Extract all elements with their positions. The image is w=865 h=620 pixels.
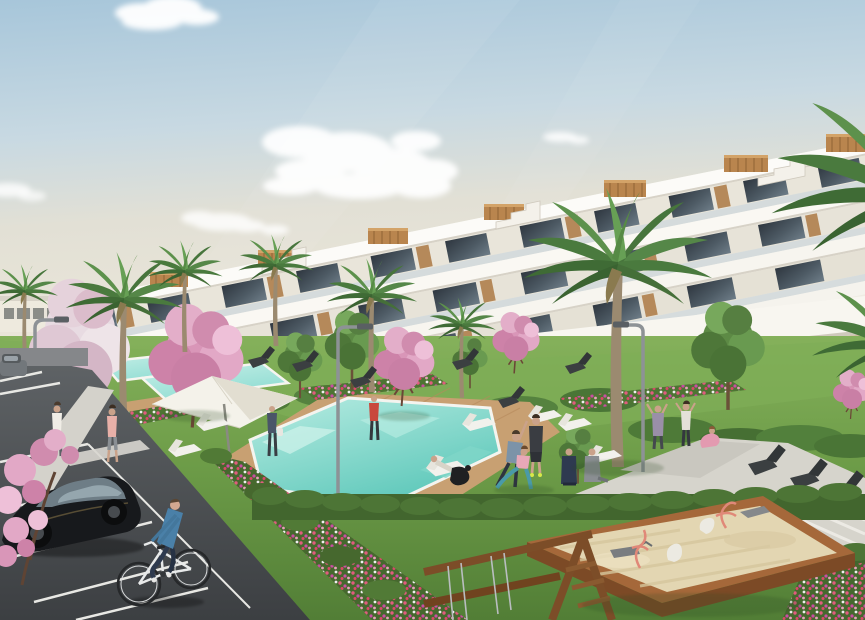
scene-canvas [0, 0, 865, 620]
rendered-scene [0, 0, 865, 620]
cloud [262, 126, 458, 199]
